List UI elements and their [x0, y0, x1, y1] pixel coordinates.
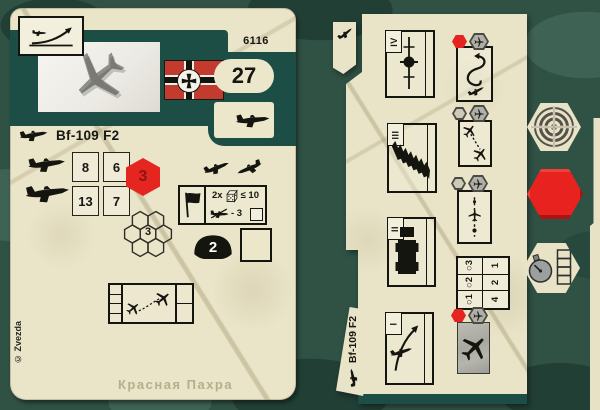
map-place-label: Красная Пахра	[118, 377, 233, 392]
photo-plane-icon	[460, 334, 488, 362]
flag-cell	[180, 187, 206, 223]
tab-plane-icon	[347, 368, 359, 388]
result-hexes-3b	[451, 175, 488, 192]
range-cell: ○3	[458, 258, 483, 275]
takeoff-icon-box	[18, 16, 84, 56]
plane-hex-icon	[468, 307, 488, 324]
attack-box: 2x ≤ 10 - 3	[178, 185, 267, 225]
rocket-salvo-icon	[390, 132, 430, 188]
unit-type-box	[214, 102, 274, 138]
copyright: © Zvezda	[13, 306, 23, 364]
red-hex-icon	[452, 35, 467, 48]
teal-bottom-band	[356, 394, 536, 406]
order-box-1: I	[385, 312, 434, 385]
stat-cell: 6	[103, 152, 130, 182]
pursuit-right-cells	[175, 285, 192, 322]
set-number: 6116	[224, 35, 288, 47]
attack-modifier: - 3	[231, 208, 242, 219]
plane-hex-icon	[469, 105, 489, 122]
stat-plane-small-icon	[22, 152, 70, 178]
unit-title: Bf-109 F2	[56, 128, 119, 143]
defense-value: 2	[191, 239, 235, 256]
stat-cell: 8	[72, 152, 99, 182]
gray-hex-icon	[452, 107, 467, 120]
order-box-2: II	[387, 217, 436, 287]
result-hexes-4	[452, 33, 489, 50]
top-tab	[333, 22, 356, 74]
dice-threshold: ≤ 10	[241, 190, 259, 201]
range-value: 3	[142, 226, 154, 238]
pursuit-diagram	[123, 285, 175, 322]
loop-maneuver-icon	[461, 50, 489, 98]
black-flag-icon	[182, 191, 202, 219]
defense-helmet: 2	[191, 232, 235, 263]
takeoff-order-icon	[388, 317, 422, 379]
bomb-run-icon	[461, 194, 488, 240]
attack-maneuver-icon	[462, 124, 488, 163]
maneuver-box-attack	[458, 120, 492, 167]
stat-cell: 13	[72, 186, 99, 216]
range-cell: 1	[483, 258, 508, 275]
order-box-4: IV	[385, 30, 435, 98]
combat-plane-right-icon	[236, 158, 264, 178]
range-cell: 4	[483, 291, 508, 308]
maneuver-box-bombrun	[457, 190, 492, 244]
combat-plane-left-icon	[202, 158, 230, 178]
unit-card-front: 6116 27 Bf-109 F2 8 6 13 7 3	[10, 8, 296, 400]
dice-multiplier: 2x	[212, 190, 223, 201]
tab-plane-icon	[336, 28, 354, 40]
unit-title-vertical: Bf-109 F2	[347, 315, 359, 362]
range-cell: 2	[483, 275, 508, 292]
iron-cross-icon	[181, 73, 197, 89]
pursuit-left-cells	[110, 285, 123, 322]
flag-disc	[177, 69, 201, 93]
cost-badge: 27	[214, 59, 274, 93]
crossed-plane-icon	[209, 207, 229, 220]
empty-status-square	[240, 228, 272, 262]
attack-modifier-row: - 3	[206, 205, 265, 224]
range-cell: ○1	[458, 291, 483, 308]
level-flight-icon	[399, 34, 419, 92]
title-plane-icon	[18, 126, 48, 144]
pursuit-planes-icon	[124, 289, 174, 319]
air-combat-icon	[202, 158, 264, 178]
attack-dice-row: 2x ≤ 10	[206, 187, 265, 205]
fighter-icon	[234, 110, 270, 130]
gray-hex-icon	[451, 177, 466, 190]
result-hexes-1	[451, 307, 488, 324]
result-hexes-3a	[452, 105, 489, 122]
maneuver-box-loop	[456, 46, 493, 102]
truck-icon	[394, 224, 420, 280]
card-sheet-photo: 6116 27 Bf-109 F2 8 6 13 7 3	[0, 0, 600, 410]
order-box-3: III	[387, 123, 437, 193]
plane-hex-icon	[469, 33, 489, 50]
plane-photo-box	[457, 322, 490, 374]
range-cell: ○2	[458, 275, 483, 292]
adjacent-card-edge	[590, 118, 600, 410]
plane-hex-icon	[468, 175, 488, 192]
die-icon	[225, 189, 239, 203]
order-numeral: IV	[388, 37, 398, 47]
stat-plane-large-icon	[20, 178, 72, 208]
pursuit-diagram-box	[108, 283, 194, 324]
unit-card-back: Bf-109 F2 IV III	[330, 8, 536, 408]
unit-title-row: Bf-109 F2	[18, 126, 119, 144]
red-hex-icon	[451, 309, 466, 322]
takeoff-icon	[25, 23, 77, 49]
range-hex-cluster: 3	[120, 206, 176, 262]
initiative-hex: 3	[126, 158, 160, 196]
empty-marker-square	[250, 208, 263, 221]
range-dice-table: ○3 1 ○2 2 ○1 4	[456, 256, 510, 310]
